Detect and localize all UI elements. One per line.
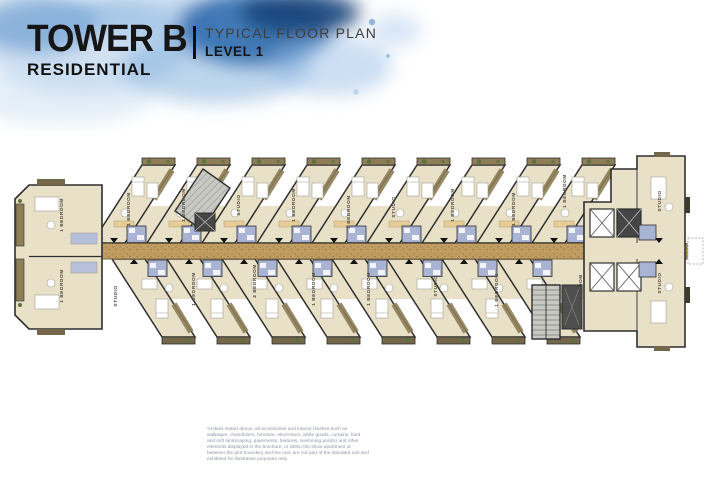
unit-label: 1 BEDROOM	[191, 272, 197, 306]
unit-label: 1 BEDROOM	[511, 192, 517, 226]
floor-plan-drawing: 1 BEDROOM1 BEDROOM1 BEDROOMSTUDIO1 BEDRO…	[6, 132, 710, 384]
page-subtitle: RESIDENTIAL	[27, 60, 199, 80]
header-divider	[193, 26, 196, 59]
unit-label: 1 BEDROOM	[181, 188, 187, 222]
unit-label: 1 BEDROOM	[311, 272, 317, 306]
unit-label: 1 BEDROOM	[366, 272, 372, 306]
unit-label: 1 BEDROOM	[59, 198, 65, 232]
unit-label: 2 BEDROOM	[252, 264, 258, 298]
page-header: TOWER B RESIDENTIAL TYPICAL FLOOR PLAN L…	[0, 0, 713, 135]
unit-label: 1 BEDROOM	[291, 188, 297, 222]
unit-label: 1 BEDROOM	[494, 273, 500, 307]
unit-label: 1 BEDROOM	[562, 174, 568, 208]
plan-units-layer	[15, 152, 703, 351]
unit-label: 1 BEDROOM	[346, 195, 352, 229]
floor-plan: 1 BEDROOM1 BEDROOM1 BEDROOMSTUDIO1 BEDRO…	[6, 132, 710, 384]
unit-label: 1 BEDROOM	[59, 269, 65, 303]
level-label: LEVEL 1	[205, 44, 377, 59]
unit-label: 1 BEDROOM	[578, 274, 584, 308]
unit-label: 1 BEDROOM	[126, 192, 132, 226]
unit-label: STUDIO	[391, 196, 397, 217]
disclaimer-text: *Unless stated above, all accessories an…	[207, 427, 369, 463]
page-title: TOWER B	[27, 20, 187, 58]
plan-type-label: TYPICAL FLOOR PLAN	[205, 25, 377, 41]
unit-label: STUDIO	[433, 275, 439, 296]
unit-label: STUDIO	[657, 190, 663, 211]
unit-label: 1 BEDROOM	[450, 188, 456, 222]
unit-label: STUDIO	[113, 285, 119, 306]
unit-label: STUDIO	[236, 194, 242, 215]
unit-label: STUDIO	[657, 272, 663, 293]
